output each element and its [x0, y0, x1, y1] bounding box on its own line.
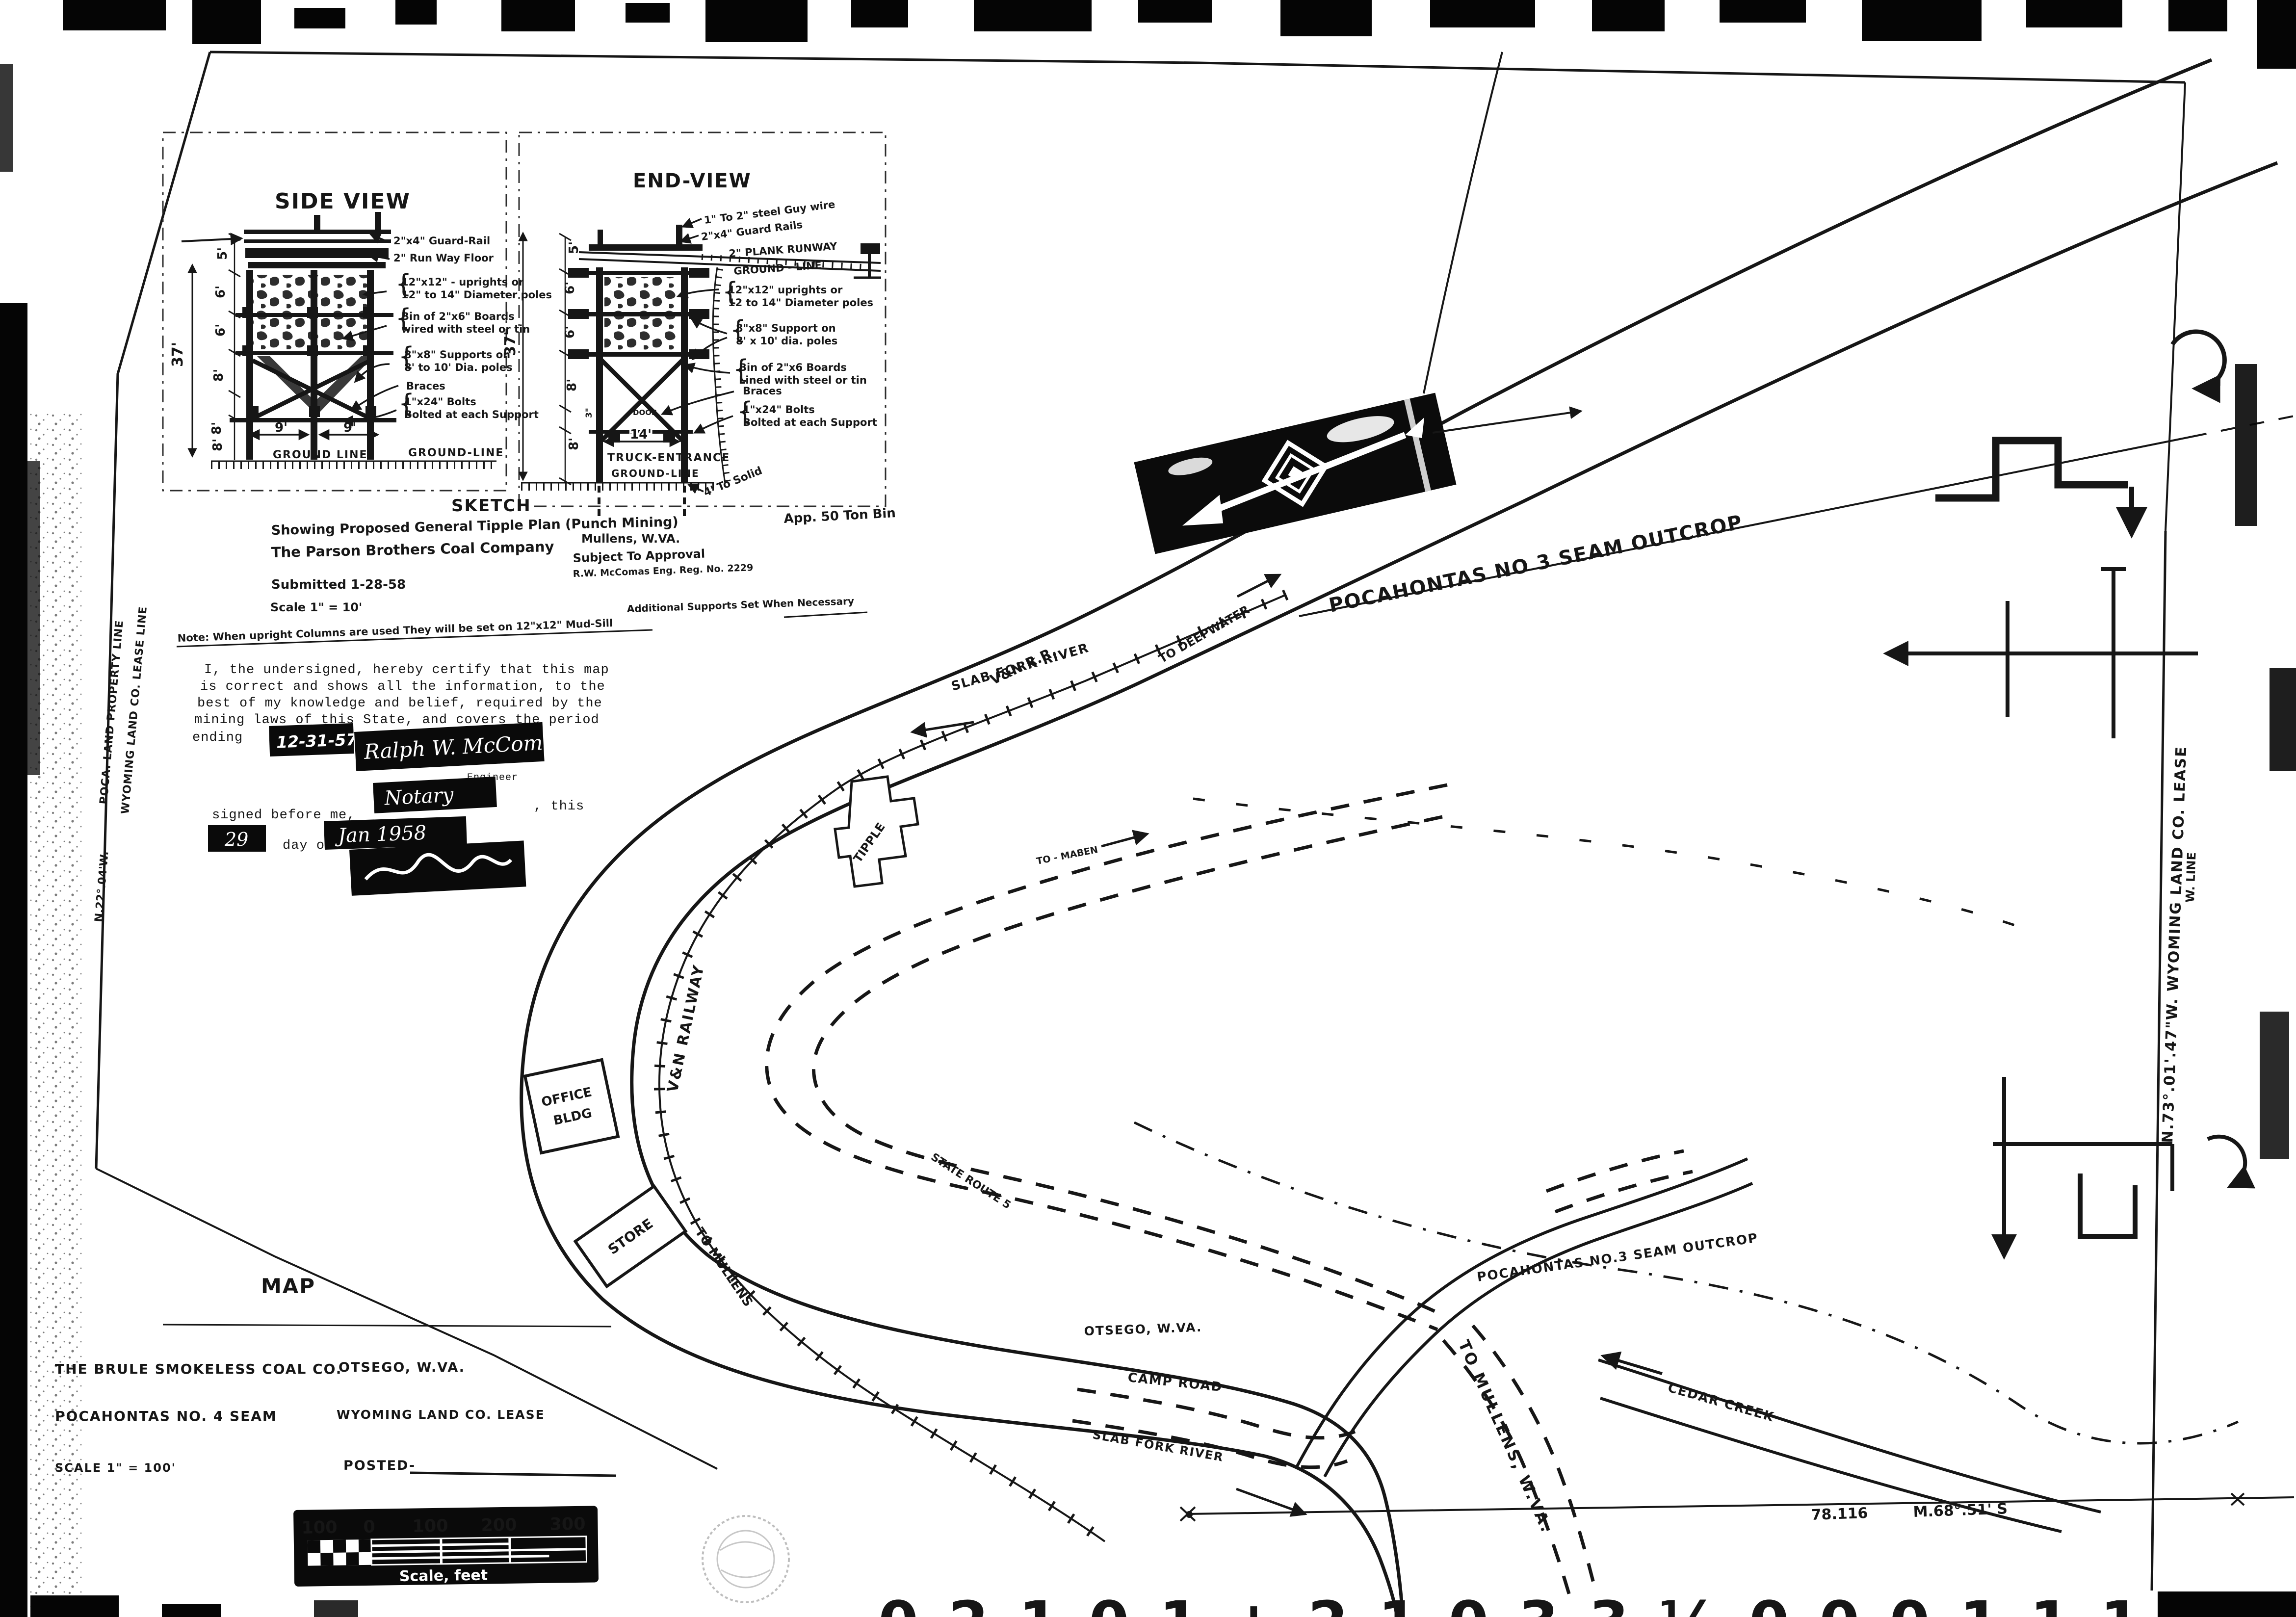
brace: { [398, 389, 415, 418]
dim-9b: 9' [343, 420, 356, 435]
map-posted: POSTED- [343, 1458, 416, 1473]
dim: 8' [565, 379, 579, 391]
ann: 12" to 14" Diameter poles [401, 289, 552, 301]
notary-seal [703, 1516, 789, 1602]
scanned-mine-map-page: SIDE VIEW END-VIEW 2"x4" Guard-Rail 2" R… [0, 0, 2296, 1617]
dim-9a: 9' [275, 420, 287, 435]
dim: 3" [584, 408, 594, 418]
dim: 5' [567, 241, 581, 254]
scale-bar: 100 0 100 200 300 Scale, feet [293, 1506, 599, 1587]
dim-14: 14' [630, 427, 652, 442]
sketch-note: Note: When upright Columns are used They… [177, 617, 613, 644]
dim: 8' [211, 369, 226, 382]
dim: 6' [563, 282, 577, 294]
sketch-line2: The Parson Brothers Coal Company [271, 538, 554, 561]
brace: { [395, 269, 412, 299]
brace: { [395, 304, 412, 333]
ann: 1"x24" Bolts [743, 404, 815, 416]
dim: 5' [215, 247, 230, 260]
lease-right-label-2: W. LINE [2183, 852, 2199, 903]
survey-line [1187, 1497, 2294, 1514]
river-flow-arrow-lower [1236, 1489, 1305, 1514]
ann: Bin of 2"x6" Boards [401, 311, 515, 322]
cert-day: 29 [224, 829, 248, 850]
ground-line-bottom: GROUND-LINE [611, 468, 700, 479]
dashed-roads [767, 785, 1693, 1600]
side-annotations: 2"x4" Guard-Rail 2" Run Way Floor 12"x12… [393, 235, 552, 420]
scale-tick: 0 [363, 1517, 375, 1537]
boundary-horizontal-segment [163, 1325, 611, 1327]
scale-bar-caption: Scale, feet [399, 1566, 488, 1585]
road-mullens-a [1443, 1340, 1571, 1600]
sketch-note2: Additional Supports Set When Necessary [626, 595, 854, 615]
brace: { [722, 277, 738, 307]
survey-marks-lower-right [1993, 1077, 2245, 1256]
map-place: OTSEGO, W.VA. [339, 1360, 465, 1375]
cedar-creek-label: CEDAR CREEK [1666, 1381, 1776, 1425]
lease-right-label: N.73°.01'.47"W. WYOMING LAND CO. LEASE [2159, 746, 2190, 1143]
office-building [525, 1060, 618, 1153]
camp-road-label: CAMP ROAD [1127, 1370, 1223, 1395]
scale-tick: 300 [549, 1514, 586, 1535]
ann: Braces [743, 385, 782, 397]
dim: 6' [563, 326, 577, 339]
ann: 1" To 2" steel Guy wire [704, 198, 836, 226]
compass-north-block [1134, 393, 1456, 554]
dim: 6' [213, 286, 228, 298]
cert-line1: I, the undersigned, hereby certify that … [204, 663, 609, 678]
bearing-left-label: N.22°.04'W. [93, 851, 111, 923]
road-stub-a [1546, 1151, 1684, 1191]
cert-line2: is correct and shows all the information… [200, 679, 605, 694]
sketch-title: SKETCH [451, 496, 531, 516]
dim: 8' [567, 438, 581, 450]
ann: 8' to 10' Dia. poles [404, 362, 513, 373]
sketch-scale: Scale 1" = 10' [270, 600, 362, 614]
ann: 2" PLANK RUNWAY [729, 240, 838, 260]
brace: { [730, 315, 746, 345]
road-mullens-b [1473, 1326, 1595, 1591]
property-line-left [96, 52, 210, 1169]
cert-month: Jan 1958 [334, 822, 427, 848]
sketch-city: Mullens, W.VA. [581, 532, 680, 546]
left-edge-speckle [28, 412, 83, 1617]
maben-arrow [1101, 834, 1147, 846]
cert-notary: Notary [383, 783, 454, 809]
ann: 12"x12" uprights or [728, 284, 843, 296]
boundary-right-line [2166, 82, 2185, 531]
scale-tick: 200 [481, 1515, 517, 1536]
property-line-label-1: POCA. LAND PROPERTY LINE [98, 620, 126, 805]
ann: 2"x4" Guard-Rail [393, 235, 490, 247]
bearing-bottom-b: M.68°.51' S [1913, 1500, 2008, 1521]
posted-underline [410, 1473, 616, 1476]
notary-redaction: Notary [373, 777, 497, 813]
sketch-subject: Subject To Approval [573, 547, 705, 565]
map-seam: POCAHONTAS NO. 4 SEAM [55, 1408, 277, 1424]
ann: 12"x12" - uprights or [401, 276, 524, 288]
ridge-tributary-line [1424, 52, 1502, 393]
film-footer-digits: 0 2 1 0 1 + 2 1 0 3 3 ½ 0 0 0 1 1 1 [878, 1589, 2145, 1617]
ann: 2" Run Way Floor [393, 252, 494, 264]
dim: 8' [209, 422, 224, 435]
side-view-title: SIDE VIEW [275, 189, 411, 214]
door-label: DOOR [633, 408, 657, 417]
mullens-road-label: TO MULLENS, W.VA. [1455, 1337, 1557, 1536]
map-lease: WYOMING LAND CO. LEASE [337, 1408, 545, 1422]
ann: 8"x8" Support on [736, 322, 836, 334]
bearing-bottom-a: 78.116 [1811, 1505, 1868, 1524]
junction-roads [1296, 1159, 1752, 1477]
certification-block: I, the undersigned, hereby certify that … [192, 663, 609, 896]
sparse-dash-line [1193, 799, 2037, 933]
mullens-rail-label: TO MULLENS [692, 1225, 756, 1309]
brace: { [737, 397, 753, 426]
river-south-bank [632, 163, 2277, 1608]
map-company: THE BRULE SMOKELESS COAL CO. [55, 1361, 342, 1377]
date-redaction: 12-31-57 [269, 723, 358, 756]
sketch-text-block: SKETCH Showing Proposed General Tipple P… [177, 496, 867, 647]
road-maben-stateroute-b [813, 817, 1447, 1317]
note2-underline [784, 612, 867, 617]
ann: 12 to 14" Diameter poles [728, 297, 873, 309]
brace: { [733, 355, 749, 384]
dim-base: 8' [210, 439, 225, 451]
state-route-label: STATE ROUTE 5 [929, 1151, 1013, 1212]
deepwater-arrow [1237, 575, 1279, 597]
ann: Bolted at each Support [743, 417, 877, 428]
ground-line-right: GROUND-LINE [408, 447, 504, 459]
vn-railway-label: V&N RAILWAY [664, 963, 708, 1094]
otsego-label: OTSEGO, W.VA. [1084, 1320, 1202, 1338]
ground-line-left: GROUND LINE [273, 449, 368, 461]
dim-37: 37' [502, 331, 519, 356]
bin-capacity-label: App. 50 Ton Bin [783, 506, 896, 526]
cert-line5: ending [192, 730, 243, 745]
day-redaction: 29 [208, 825, 266, 852]
camp-road-a [1077, 1389, 1355, 1438]
deepwater-label: TO DEEPWATER [1156, 603, 1252, 666]
signature-redaction: Ralph W. McComas [354, 721, 567, 771]
map-title-block: MAP THE BRULE SMOKELESS COAL CO. OTSEGO,… [55, 1274, 545, 1475]
dim-37: 37' [169, 342, 186, 367]
outcrop-lower-label: POCAHONTAS NO.3 SEAM OUTCROP [1476, 1231, 1759, 1285]
ann: 8"x8" Supports on [404, 349, 510, 361]
dim: 6' [213, 324, 228, 337]
truck-entrance-label: TRUCK-ENTRANCE [607, 452, 730, 464]
ann: 1"x24" Bolts [404, 396, 476, 408]
scale-tick: 100 [412, 1516, 448, 1537]
brace: { [398, 342, 415, 371]
scale-bar-rule [308, 1537, 587, 1566]
ann: Lined with steel or tin [739, 374, 867, 386]
notary-signature-redaction [349, 840, 526, 896]
end-view-title: END-VIEW [633, 170, 752, 192]
ann: 8' x 10' dia. poles [736, 335, 837, 347]
map-title: MAP [261, 1274, 315, 1298]
this-label: , this [534, 799, 584, 814]
ann: Bolted at each Support [404, 409, 539, 420]
scale-tick: 100 [301, 1518, 338, 1538]
solid-label: 4' To Solid [702, 465, 764, 499]
vn-railroad [659, 595, 1286, 1541]
ann: Bin of 2"x6 Boards [739, 362, 847, 373]
maben-label: TO - MABEN [1036, 844, 1099, 867]
cert-date: 12-31-57 [276, 730, 357, 752]
cert-line3: best of my knowledge and belief, require… [197, 696, 602, 711]
survey-marks-top-right [1887, 332, 2224, 738]
sketch-engineer: R.W. McComas Eng. Reg. No. 2229 [573, 562, 753, 579]
boundary-top-line [210, 52, 2185, 82]
before-label: signed before me, [212, 808, 355, 823]
ann: GROUND - LINE [733, 260, 822, 277]
sketch-submitted: Submitted 1-28-58 [271, 577, 406, 592]
